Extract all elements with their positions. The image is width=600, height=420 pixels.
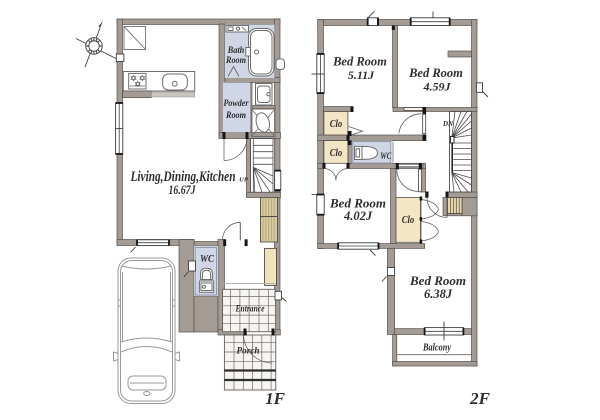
svg-text:Clo: Clo <box>330 119 343 130</box>
svg-text:DN: DN <box>442 120 454 128</box>
svg-text:Clo: Clo <box>330 148 343 159</box>
svg-text:Powder: Powder <box>224 99 249 109</box>
svg-text:2F: 2F <box>469 389 491 408</box>
svg-text:5.11J: 5.11J <box>348 68 375 82</box>
svg-text:Room: Room <box>225 56 246 66</box>
svg-text:Room: Room <box>225 111 246 121</box>
svg-text:Bath: Bath <box>227 46 244 56</box>
svg-text:Entrance: Entrance <box>235 304 265 314</box>
svg-text:UP: UP <box>239 177 249 184</box>
svg-text:Bed Room: Bed Room <box>332 55 387 69</box>
svg-text:Clo: Clo <box>402 215 415 226</box>
svg-text:4.59J: 4.59J <box>423 80 452 94</box>
svg-text:WC: WC <box>380 151 392 161</box>
svg-text:WC: WC <box>200 254 215 265</box>
svg-text:1F: 1F <box>265 389 286 408</box>
svg-text:6.38J: 6.38J <box>424 287 453 301</box>
svg-text:Balcony: Balcony <box>422 343 451 354</box>
svg-text:Bed Room: Bed Room <box>409 273 466 288</box>
svg-text:16.67J: 16.67J <box>169 182 196 197</box>
svg-text:Porch: Porch <box>237 346 260 356</box>
svg-text:Bed Room: Bed Room <box>408 66 463 80</box>
svg-text:4.02J: 4.02J <box>343 209 373 223</box>
